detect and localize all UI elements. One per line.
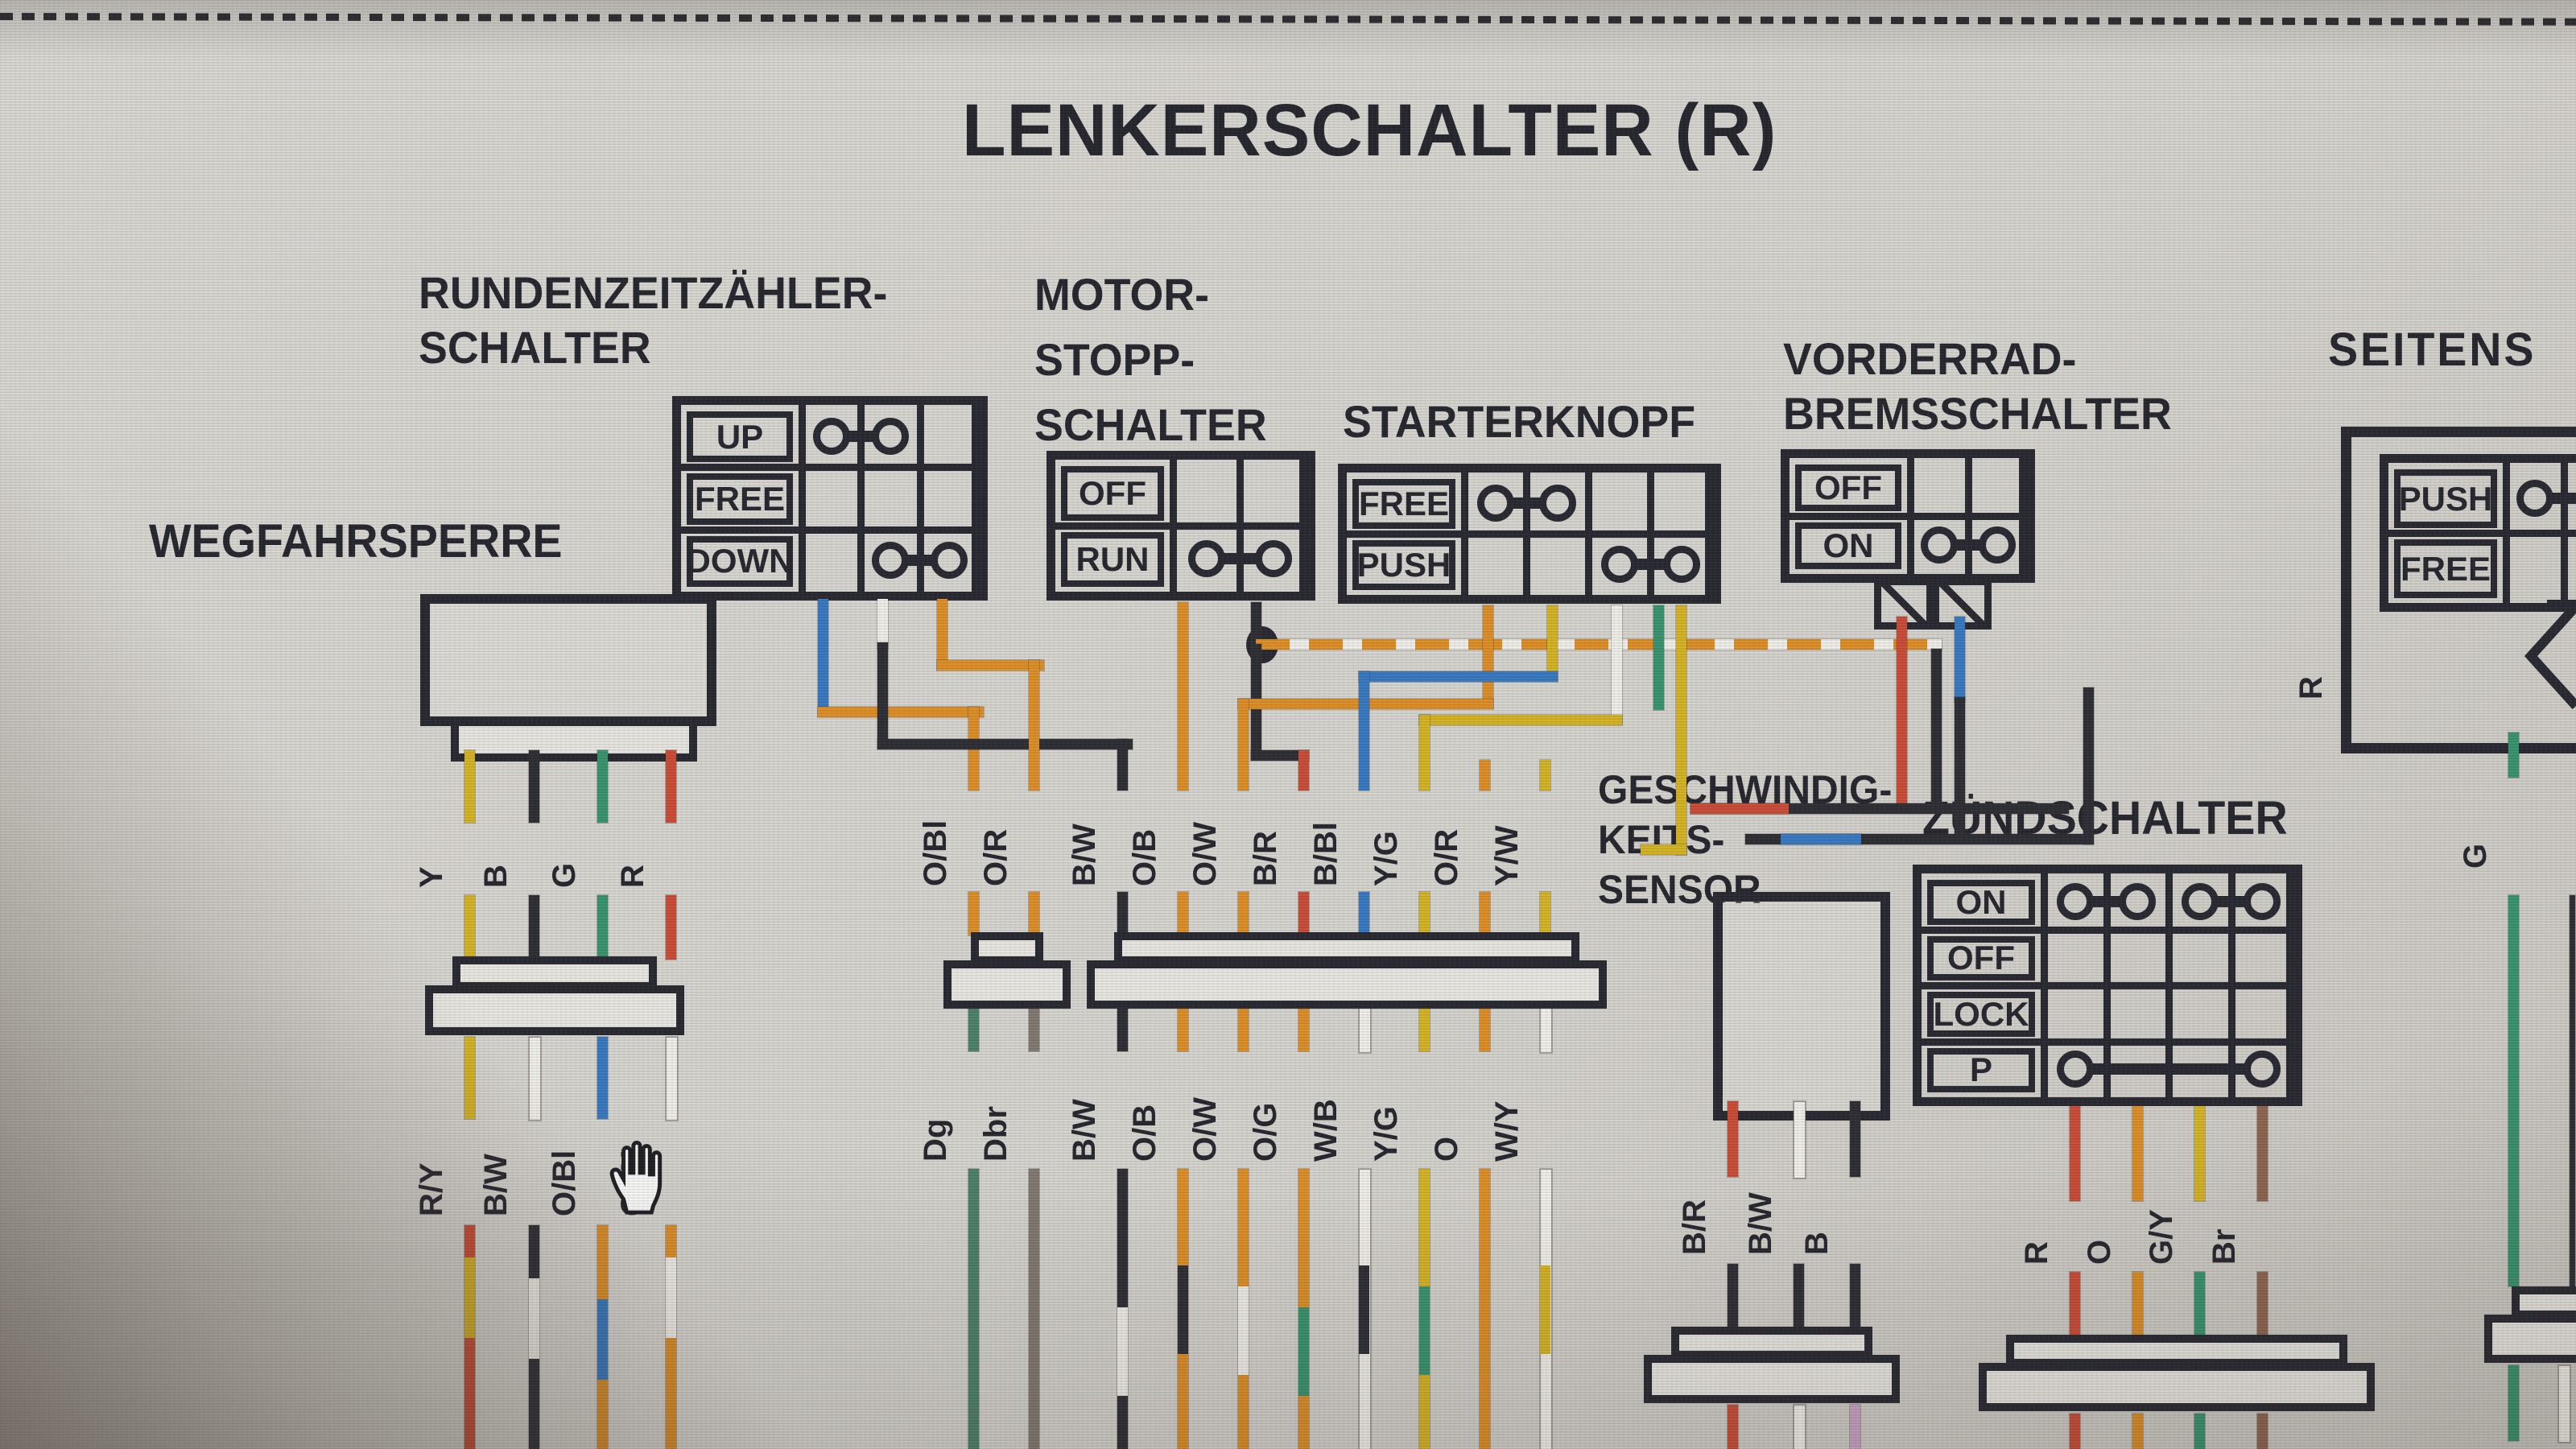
wire-route-segment [1547,605,1558,681]
wire-weg_bottom-0 [464,1037,475,1119]
table-row-label-starter-push: PUSH [1352,540,1455,590]
wire-label-side-0: G [2458,844,2494,869]
wire-label-mid_top-7: Y/G [1368,831,1405,886]
contact-circle-zuend [2182,883,2219,920]
wire-route-segment [2083,687,2094,844]
connector-5-top [2512,1286,2576,1319]
table-row-label-runden-up: UP [687,411,793,462]
table-colline-zuend [2286,873,2293,1097]
wire-mid_top-3 [1178,892,1188,935]
wire-sensor_bottom-0 [1728,1405,1738,1449]
wire-route-segment [1359,671,1558,682]
wire-route-segment [1728,1264,1738,1330]
wegfahrsperre-box [420,594,716,726]
wire-route-segment [1178,602,1188,791]
wire-label-mid_bottom-2: B/W [1067,1099,1103,1162]
table-row-label-zuend-on: ON [1927,880,2035,925]
table-colline-seiten [2503,463,2510,603]
wire-route-segment [1419,715,1622,725]
wire-label-mid_bottom-6: W/B [1308,1099,1344,1162]
table-colline-vorder [2019,458,2026,574]
wire-sensor_bottom-2 [1850,1405,1860,1449]
wire-label-weg_top-2: G [547,863,583,888]
table-row-label-motor-run: RUN [1061,532,1164,587]
wire-label-weg_top-1: B [478,865,514,888]
table-colline-starter [1461,473,1468,595]
wire-zuend_bottom-0 [2070,1414,2080,1449]
wire-zuend-0 [2070,1106,2080,1201]
contact-circle-starter [1477,485,1514,522]
wire-weg_top-2 [597,895,608,960]
contact-bridge-motor [1220,553,1260,564]
label-seitenstaender: SEITENS [2328,322,2536,379]
wire-mid_top-9 [1540,892,1550,935]
wire-weg_top-0 [464,895,475,960]
connector-1-bottom [943,960,1071,1009]
wire-route-segment [877,642,888,749]
wire-zuend-1 [2132,1272,2143,1336]
wire-band-mid_bottom-7 [1419,1286,1430,1375]
contact-circle-starter [1601,546,1638,583]
wiring-diagram-screen: LENKERSCHALTER (R) RUNDENZEITZÄHLER- SCH… [0,0,2576,1449]
wire-band-mid_bottom-3 [1178,1265,1188,1354]
wire-route-segment [1931,649,1942,810]
wire-label-weg_bottom-1: B/W [478,1154,514,1216]
wire-label-mid_bottom-1: Dbr [978,1106,1014,1162]
connector-4-bottom [1979,1363,2375,1411]
wire-mid_top-4 [1238,892,1249,935]
connector-3-top [1671,1327,1872,1359]
wire-label-mid_top-1: O/R [978,829,1014,886]
wire-band-weg_bottom-0 [464,1257,475,1338]
wire-route-segment [1117,739,1128,791]
speed-sensor-box [1713,892,1890,1121]
table-colline-starter [1585,473,1592,595]
wire-label-mid_bottom-8: O [1429,1137,1465,1162]
wire-band-weg_bottom-2 [597,1299,608,1380]
table-row-label-runden-free: FREE [687,473,793,524]
wire-label-side_r-0: R [2293,676,2330,700]
wire-band-mid_bottom-9 [1540,1265,1550,1354]
table-rowline-motor [1055,522,1307,530]
table-colline-motor [1170,460,1177,592]
page-top-dashed-rule [0,13,2576,26]
wire-route-segment [818,599,828,716]
wire-band-mid_bottom-4 [1238,1286,1249,1375]
wire-sensor_bottom-1 [1794,1405,1806,1449]
contact-circle-runden [813,418,850,455]
wire-weg_top-2 [597,750,608,823]
wire-mid_bottom-8 [1480,1169,1490,1449]
wire-label-mid_bottom-4: O/W [1187,1097,1224,1162]
wire-mid_top-6 [1359,892,1369,935]
wire-weg_top-1 [529,750,539,823]
wire-weg_top-0 [464,750,475,823]
wire-mid_top-1 [1029,892,1039,935]
wire-route-segment [1897,617,1907,810]
wire-label-zuend-1: O [2082,1240,2118,1265]
wire-band-weg_bottom-3 [666,1257,676,1338]
wire-zuend-3 [2257,1106,2268,1201]
wire-route-segment [877,599,888,649]
wire-band-mid_bottom-2 [1117,1307,1128,1396]
table-colline-starter [1705,473,1712,595]
wire-label-sensor-0: B/R [1677,1199,1713,1255]
table-row-label-runden-down: DOWN [687,536,793,587]
wire-sensor-2 [1850,1101,1860,1177]
contact-circle-zuend [2057,883,2094,920]
wire-label-mid_top-5: B/R [1248,831,1284,886]
wire-label-mid_top-9: Y/W [1489,825,1525,886]
wire-band-weg_bottom-1 [529,1278,539,1359]
wire-route-segment [1256,639,1942,650]
connector-0-bottom [425,985,684,1035]
wire-band-mid_bottom-6 [1359,1265,1369,1354]
wire-route-segment [1641,844,1686,855]
wire-label-mid_top-6: B/Bl [1308,822,1344,886]
table-row-label-zuend-off: OFF [1927,936,2035,981]
wire-sensor-1 [1794,1101,1806,1179]
label-motor-stopp-schalter: MOTOR- STOPP- SCHALTER [1034,262,1267,458]
wire-label-mid_top-2: B/W [1067,824,1103,886]
wire-route-segment [1676,605,1686,855]
wire-route-segment [1419,715,1430,791]
wire-zuend_bottom-3 [2257,1414,2268,1449]
wire-label-weg_top-0: Y [414,866,450,888]
wire-mid_bottom-1 [1029,1169,1039,1449]
wire-label-mid_bottom-3: O/B [1127,1104,1163,1162]
contact-circle-zuend [2244,883,2281,920]
table-row-label-motor-off: OFF [1061,466,1164,521]
wire-mid_bottom-8 [1480,1008,1490,1051]
table-colline-vorder [1965,458,1972,574]
wire-label-zuend-0: R [2019,1241,2055,1265]
label-vorderrad-bremsschalter: VORDERRAD- BREMSSCHALTER [1783,332,2172,442]
contact-circle-runden [872,542,909,579]
contact-circle-starter [1539,485,1576,522]
wire-side-0 [2508,733,2519,778]
wire-zuend-1 [2132,1106,2143,1201]
label-wegfahrsperre: WEGFAHRSPERRE [149,514,563,571]
wire-mid_top-5 [1298,892,1309,935]
table-colline-runden [799,405,806,592]
connector-2-bottom [1087,960,1607,1009]
wire-side-0 [2508,895,2519,1286]
connector-1-top [971,932,1043,964]
wire-mid_bottom-2 [1117,1008,1128,1051]
hand-cursor-icon [605,1139,671,1216]
wire-label-weg_bottom-2: O/Bl [547,1150,583,1216]
vignette-overlay [0,0,2576,1449]
table-colline-starter [1647,473,1654,595]
wire-zuend-0 [2070,1272,2080,1336]
contact-circle-starter [1663,546,1700,583]
wire-label-sensor-2: B [1799,1232,1835,1255]
wegfahrsperre-plug [451,718,697,762]
wire-route-segment [1359,671,1369,791]
wire-route-segment [1238,699,1249,791]
wire-mid_bottom-0 [968,1008,979,1051]
wire-side_bottom-0 [2508,1365,2519,1441]
wire-label-mid_top-3: O/B [1127,829,1163,886]
label-rundenzeitzaehler: RUNDENZEITZÄHLER- SCHALTER [419,266,887,376]
wire-route-segment [877,739,1133,749]
wire-mid_bottom-6 [1359,1008,1371,1053]
contact-circle-vorder [1921,526,1958,563]
wire-label-mid_bottom-0: Dg [918,1119,954,1162]
wire-band-mid_bottom-5 [1298,1307,1309,1396]
wire-label-mid_top-8: O/R [1429,829,1465,886]
table-rowline-seiten [2388,530,2576,537]
wire-label-mid_bottom-9: W/Y [1489,1100,1525,1162]
wire-label-mid_top-0: O/Bl [918,820,954,886]
wire-label-sensor-1: B/W [1743,1192,1779,1255]
wire-zuend-2 [2194,1106,2205,1201]
table-colline-starter [1523,473,1530,595]
connector-5-bottom [2484,1315,2576,1363]
table-row-label-starter-free: FREE [1352,479,1455,529]
wire-weg_bottom-2 [597,1037,608,1119]
wire-mid_bottom-1 [1029,1008,1039,1051]
wire-weg_top-3 [666,750,676,823]
wire-route-segment [1653,605,1664,710]
wire-zuend-3 [2257,1272,2268,1336]
page-title: LENKERSCHALTER (R) [962,89,1777,173]
wire-label-mid_bottom-7: Y/G [1368,1106,1405,1162]
contact-circle-motor [1255,540,1292,577]
wire-route-segment [1690,803,1789,814]
table-row-label-vorder-off: OFF [1795,464,1901,511]
wire-label-weg_bottom-0: R/Y [414,1162,450,1216]
wire-mid_bottom-4 [1238,1008,1249,1051]
wire-weg_bottom-3 [666,1037,678,1121]
wire-label-weg_top-3: R [615,865,651,888]
diode-icon [2520,600,2576,720]
wire-route-segment [1029,660,1039,791]
table-row-label-seiten-push: PUSH [2394,469,2497,528]
wire-route-segment [937,599,947,670]
connector-3-bottom [1644,1355,1900,1403]
table-colline-runden [972,405,979,592]
wire-route-segment [1794,1264,1804,1330]
table-colline-motor [1299,460,1307,592]
wire-zuend-2 [2194,1272,2205,1336]
wire-route-segment [818,707,984,717]
connector-4-top [2006,1335,2347,1367]
table-colline-zuend [2041,873,2048,1097]
wire-mid_bottom-7 [1419,1008,1430,1051]
wire-label-zuend-3: Br [2207,1229,2243,1265]
wire-label-mid_top-4: O/W [1187,822,1224,886]
wire-route-segment [1955,617,1965,702]
wire-route-segment [1781,834,1861,844]
wire-side_bottom-1 [2558,1365,2570,1443]
wire-zuend_bottom-1 [2132,1414,2143,1449]
wire-zuend_bottom-2 [2194,1414,2205,1449]
contact-circle-zuend [2057,1051,2094,1088]
contact-bridge-zuend [2089,1063,2249,1075]
wire-mid_bottom-0 [968,1169,979,1449]
contact-circle-vorder [1979,526,2016,563]
wire-mid_bottom-3 [1178,1008,1188,1051]
wire-mid_top-2 [1117,892,1128,935]
table-row-label-zuend-lock: LOCK [1927,992,2035,1037]
wire-route-segment [1850,1264,1860,1330]
wire-label-mid_bottom-5: O/G [1248,1103,1284,1162]
contact-circle-runden [872,418,909,455]
wire-weg_top-3 [666,895,676,960]
wire-weg_bottom-1 [529,1037,541,1121]
contact-circle-motor [1188,540,1225,577]
wire-weg_top-1 [529,895,539,960]
wire-sensor-0 [1728,1101,1738,1177]
wire-route-segment [2570,895,2575,1288]
wire-mid_top-7 [1419,892,1430,935]
table-colline-vorder [1907,458,1914,574]
wire-route-segment [1480,760,1490,791]
wire-route-segment [1612,605,1622,724]
wire-mid_top-0 [968,892,979,935]
table-row-label-zuend-p: P [1927,1048,2035,1093]
wire-route-segment [1540,760,1550,791]
table-colline-motor [1236,460,1244,592]
label-starterknopf: STARTERKNOPF [1343,394,1695,449]
table-row-label-vorder-on: ON [1795,522,1901,569]
wire-mid_bottom-9 [1540,1008,1552,1053]
wire-mid_bottom-5 [1298,1008,1309,1051]
table-rowline-runden [681,464,979,471]
table-row-label-seiten-free: FREE [2394,539,2497,598]
contact-circle-zuend [2119,883,2156,920]
wire-route-segment [1955,697,1965,842]
table-colline-seiten [2561,463,2568,603]
scanline-overlay [0,0,2576,1449]
connector-2-top [1114,932,1579,964]
wire-mid_top-8 [1480,892,1490,935]
wire-route-segment [1483,605,1493,708]
contact-circle-seiten [2516,480,2553,517]
wire-route-segment [1298,750,1309,791]
wire-label-zuend-2: G/Y [2144,1209,2180,1265]
table-rowline-runden [681,526,979,534]
